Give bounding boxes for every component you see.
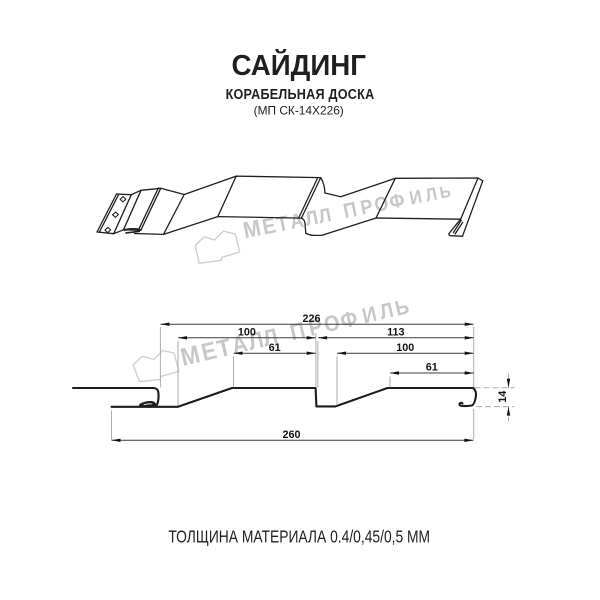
svg-text:САЙДИНГ: САЙДИНГ xyxy=(231,49,366,82)
svg-text:ТОЛЩИНА МАТЕРИАЛА 0.4/0,45/0,5: ТОЛЩИНА МАТЕРИАЛА 0.4/0,45/0,5 ММ xyxy=(168,528,430,547)
svg-text:226: 226 xyxy=(302,313,320,325)
svg-text:КОРАБЕЛЬНАЯ ДОСКА: КОРАБЕЛЬНАЯ ДОСКА xyxy=(226,85,375,102)
svg-text:100: 100 xyxy=(396,342,414,354)
svg-text:113: 113 xyxy=(387,327,404,339)
svg-text:260: 260 xyxy=(282,429,300,441)
svg-text:(МП СК-14Х226): (МП СК-14Х226) xyxy=(254,104,344,118)
svg-text:100: 100 xyxy=(238,327,256,339)
svg-text:14: 14 xyxy=(497,391,509,403)
svg-text:61: 61 xyxy=(269,342,281,354)
svg-text:61: 61 xyxy=(426,362,438,374)
